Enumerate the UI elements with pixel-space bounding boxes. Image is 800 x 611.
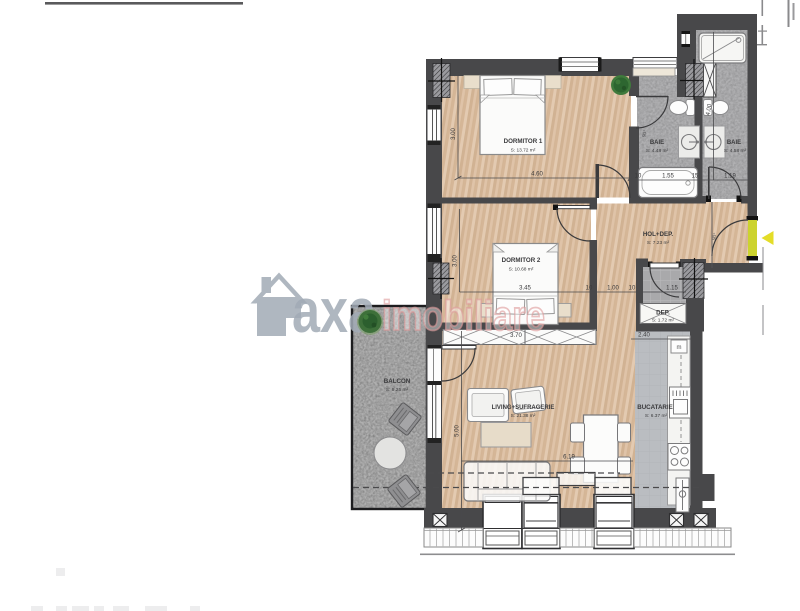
svg-text:LIVING+SUFRAGERIE: LIVING+SUFRAGERIE — [492, 405, 555, 411]
svg-text:HOL+DEP.: HOL+DEP. — [643, 231, 674, 238]
svg-text:DORMITOR 1: DORMITOR 1 — [504, 138, 543, 145]
svg-text:m: m — [677, 345, 682, 351]
svg-text:BUCATARIE: BUCATARIE — [637, 404, 673, 411]
svg-text:S: 10.68 m²: S: 10.68 m² — [509, 267, 534, 273]
svg-text:BALCON: BALCON — [384, 378, 411, 385]
svg-text:6.19: 6.19 — [563, 455, 575, 461]
svg-text:S: 1.72 m²: S: 1.72 m² — [652, 318, 675, 324]
svg-text:10: 10 — [629, 286, 636, 292]
svg-text:3.00: 3.00 — [451, 128, 457, 140]
svg-text:DEP.: DEP. — [656, 310, 670, 317]
svg-text:S: 21.38 m²: S: 21.38 m² — [511, 413, 536, 419]
svg-text:DORMITOR 2: DORMITOR 2 — [502, 257, 541, 264]
svg-text:15: 15 — [692, 174, 699, 180]
svg-text:3.00: 3.00 — [453, 255, 459, 267]
svg-text:1.19: 1.19 — [724, 174, 736, 180]
svg-text:S: 6.37 m²: S: 6.37 m² — [645, 413, 668, 419]
svg-text:3.45: 3.45 — [519, 286, 531, 292]
svg-text:S: 13.72 m²: S: 13.72 m² — [511, 148, 536, 154]
svg-text:1.15: 1.15 — [666, 286, 678, 292]
svg-text:S: 7.23 m²: S: 7.23 m² — [647, 240, 670, 246]
svg-text:5.00: 5.00 — [455, 425, 461, 437]
svg-text:4.60: 4.60 — [531, 172, 543, 178]
svg-text:3.70: 3.70 — [510, 333, 522, 339]
svg-text:1.00: 1.00 — [607, 286, 619, 292]
svg-text:imobiliare: imobiliare — [382, 292, 545, 339]
svg-text:S: 9.25 m²: S: 9.25 m² — [386, 387, 409, 393]
svg-text:1.55: 1.55 — [662, 174, 674, 180]
svg-text:BAIE: BAIE — [650, 140, 664, 146]
svg-text:S: 4.58 m²: S: 4.58 m² — [724, 148, 747, 154]
svg-text:2.40: 2.40 — [638, 333, 650, 339]
svg-text:10: 10 — [635, 174, 642, 180]
svg-text:10: 10 — [586, 286, 593, 292]
svg-text:BAIE: BAIE — [727, 140, 741, 146]
svg-text:S: 4.48 m²: S: 4.48 m² — [646, 148, 669, 154]
